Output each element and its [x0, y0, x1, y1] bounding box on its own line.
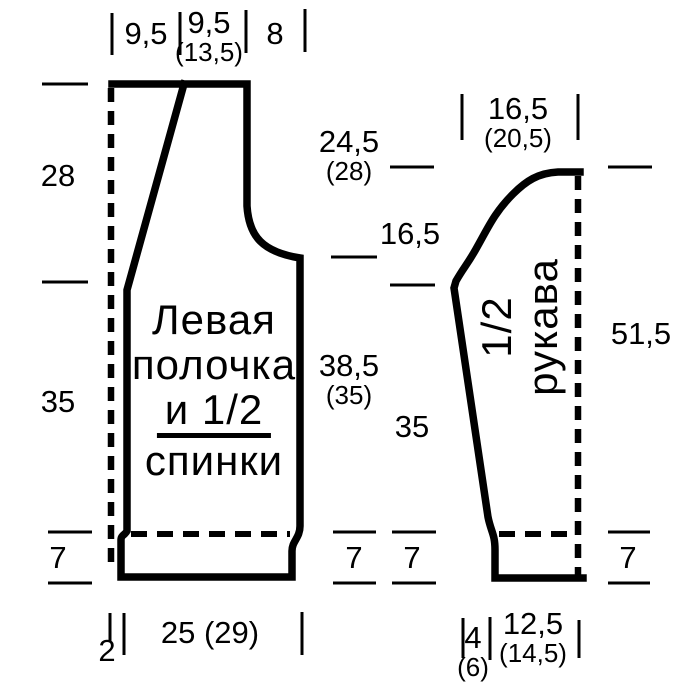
- body-side-length-alt: (35): [319, 381, 379, 409]
- body-piece-name-line1: Левая: [132, 297, 296, 342]
- body-upper-height-label: 28: [41, 161, 75, 191]
- sleeve-cuff-width-alt: (14,5): [499, 639, 567, 667]
- sleeve-cuff-width-label: 12,5 (14,5): [499, 609, 567, 667]
- sleeve-lower-length-label: 35: [395, 412, 429, 442]
- body-bottom-offset-label: 2: [98, 636, 115, 666]
- sleeve-bottom-offset-label: 4 (6): [457, 623, 489, 681]
- sleeve-total-length-label: 51,5: [611, 319, 671, 349]
- pattern-shapes-layer: [0, 0, 690, 690]
- sleeve-piece-name-line2: рукава: [520, 258, 566, 396]
- body-side-length-main: 38,5: [319, 351, 379, 381]
- body-piece-name-line3: и 1/2: [157, 387, 272, 438]
- body-armhole-depth-alt: (28): [319, 157, 379, 185]
- sleeve-bottom-offset-main: 4: [457, 623, 489, 653]
- body-piece-name: Левая полочка и 1/2 спинки: [132, 297, 296, 483]
- body-piece-name-line4: спинки: [132, 438, 296, 483]
- body-top-width-mid-alt: (13,5): [175, 38, 243, 66]
- sleeve-right-ticks: [608, 167, 652, 583]
- body-top-width-mid-label: 9,5 (13,5): [175, 8, 243, 66]
- body-side-length-label: 38,5 (35): [319, 351, 379, 409]
- body-armhole-depth-label: 24,5 (28): [319, 127, 379, 185]
- body-rib-height-label: 7: [49, 543, 66, 573]
- body-top-width-mid-main: 9,5: [175, 8, 243, 38]
- body-top-width-left-label: 9,5: [124, 19, 167, 49]
- body-piece-name-line2: полочка: [132, 342, 296, 387]
- body-right-rib-label: 7: [345, 543, 362, 573]
- sleeve-piece-name-line1: 1/2: [474, 258, 520, 396]
- body-armhole-depth-main: 24,5: [319, 127, 379, 157]
- sleeve-right-rib-label: 7: [619, 543, 636, 573]
- sleeve-left-rib-label: 7: [403, 543, 420, 573]
- sleeve-piece-name: 1/2 рукава: [474, 258, 566, 396]
- body-top-width-right-label: 8: [266, 19, 283, 49]
- sleeve-top-width-main: 16,5: [484, 94, 552, 124]
- sleeve-top-width-label: 16,5 (20,5): [484, 94, 552, 152]
- sleeve-bottom-offset-alt: (6): [457, 653, 489, 681]
- sleeve-cap-height-label: 16,5: [380, 219, 440, 249]
- body-middle-height-label: 35: [41, 387, 75, 417]
- body-bottom-width-label: 25 (29): [161, 618, 259, 648]
- sleeve-cuff-width-main: 12,5: [499, 609, 567, 639]
- sleeve-top-width-alt: (20,5): [484, 124, 552, 152]
- knitting-pattern-diagram: 9,5 9,5 (13,5) 8 28 35 7 24,5 (28) 38,5 …: [0, 0, 690, 690]
